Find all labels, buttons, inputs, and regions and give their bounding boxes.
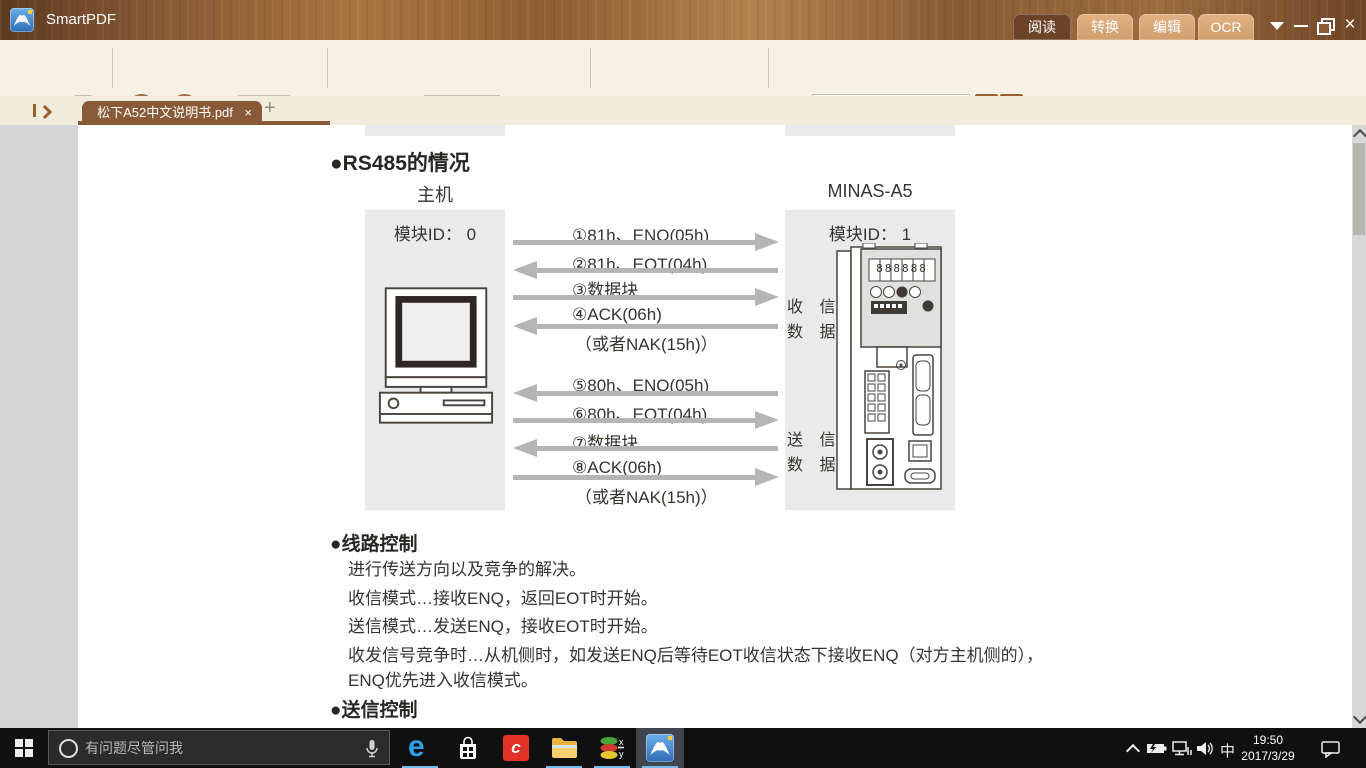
main-toolbar: ← → 页码: /512 150% ↺ ↻ bbox=[0, 40, 1366, 97]
taskbar-red-app-button[interactable]: c bbox=[492, 728, 540, 768]
taskbar-edge-button[interactable]: e bbox=[396, 728, 444, 768]
microphone-icon[interactable] bbox=[365, 739, 379, 759]
mode-tab-convert[interactable]: 转换 bbox=[1077, 14, 1133, 40]
taskbar: e c bbox=[0, 728, 1366, 768]
device-module-id: 模块ID： 1 bbox=[785, 220, 955, 245]
taskbar-store-button[interactable] bbox=[444, 728, 492, 768]
pdf-page: ●RS485的情况 主机 MINAS-A5 模块ID： 0 bbox=[78, 125, 1352, 728]
sidebar-toggle-icon[interactable] bbox=[33, 104, 53, 118]
diagram-box-remnant bbox=[785, 125, 955, 136]
line-control-line: 进行传送方向以及竞争的解决。 bbox=[348, 555, 586, 580]
arrow-right-head bbox=[755, 233, 779, 251]
document-tab-bar: 松下A52中文说明书.pdf × + bbox=[0, 96, 1366, 125]
toolbar-separator bbox=[768, 48, 769, 88]
battery-icon[interactable] bbox=[1146, 742, 1168, 755]
arrow-left-head bbox=[513, 439, 537, 457]
xy-data-app-icon: x y bbox=[599, 735, 626, 762]
arrow-left bbox=[537, 446, 778, 451]
diagram-box-remnant bbox=[365, 125, 505, 136]
close-button[interactable]: × bbox=[1340, 16, 1360, 34]
line-control-line: 送信模式…发送ENQ，接收EOT时开始。 bbox=[348, 612, 658, 637]
title-bar: SmartPDF 阅读 转换 编辑 OCR × bbox=[0, 0, 1366, 40]
host-column-title: 主机 bbox=[365, 181, 505, 207]
taskbar-xy-app-button[interactable]: x y bbox=[588, 728, 636, 768]
mode-tab-edit[interactable]: 编辑 bbox=[1139, 14, 1195, 40]
menu-dropdown-icon[interactable] bbox=[1268, 16, 1288, 34]
servo-display-digits: 888888 bbox=[869, 262, 935, 275]
cortana-search-input[interactable] bbox=[83, 735, 337, 761]
vertical-scrollbar[interactable] bbox=[1352, 125, 1366, 728]
scroll-down-icon[interactable] bbox=[1353, 710, 1366, 724]
file-explorer-icon bbox=[551, 737, 577, 759]
arrow-left-head bbox=[513, 384, 537, 402]
tray-expand-icon[interactable] bbox=[1126, 744, 1140, 758]
network-icon[interactable] bbox=[1172, 741, 1192, 757]
arrow-left-head bbox=[513, 261, 537, 279]
action-center-icon[interactable] bbox=[1320, 740, 1342, 758]
window-title: SmartPDF bbox=[46, 11, 116, 28]
taskbar-clock[interactable]: 19:50 2017/3/29 bbox=[1238, 732, 1298, 764]
arrow-right-head bbox=[755, 288, 779, 306]
scrollbar-thumb[interactable] bbox=[1353, 143, 1365, 235]
host-module-id: 模块ID： 0 bbox=[365, 220, 505, 245]
sequence-note-1: （或者NAK(15h)） bbox=[575, 330, 718, 355]
line-control-line: 收信模式…接收ENQ，返回EOT时开始。 bbox=[348, 584, 658, 609]
arrow-left bbox=[537, 268, 778, 273]
red-app-icon: c bbox=[503, 735, 529, 761]
smartpdf-window: SmartPDF 阅读 转换 编辑 OCR × bbox=[0, 0, 1366, 768]
send-control-heading: ●送信控制 bbox=[330, 695, 417, 722]
arrow-right-head bbox=[755, 411, 779, 429]
arrow-left-head bbox=[513, 317, 537, 335]
document-tab[interactable]: 松下A52中文说明书.pdf × bbox=[82, 101, 262, 125]
line-control-line: 收发信号竞争时…从机侧时，如发送ENQ后等待EOT收信状态下接收ENQ（对方主机… bbox=[348, 641, 1043, 666]
smartpdf-taskbar-icon bbox=[646, 734, 674, 762]
clock-date: 2017/3/29 bbox=[1238, 748, 1298, 764]
mode-tab-read[interactable]: 阅读 bbox=[1013, 14, 1071, 40]
edge-icon: e bbox=[408, 730, 425, 764]
restore-button[interactable] bbox=[1316, 16, 1336, 34]
close-tab-icon[interactable]: × bbox=[244, 101, 252, 125]
arrow-right bbox=[513, 240, 755, 245]
toolbar-separator bbox=[327, 48, 328, 88]
toolbar-separator bbox=[112, 48, 113, 88]
store-icon bbox=[456, 736, 480, 762]
sequence-note-2: （或者NAK(15h)） bbox=[575, 483, 718, 508]
section-heading: ●RS485的情况 bbox=[330, 147, 470, 177]
volume-icon[interactable] bbox=[1196, 741, 1214, 756]
computer-illustration bbox=[378, 285, 494, 430]
document-tab-title: 松下A52中文说明书.pdf bbox=[97, 105, 233, 120]
mode-tab-ocr[interactable]: OCR bbox=[1198, 14, 1254, 40]
sequence-label-4: ④ACK(06h) bbox=[572, 305, 662, 325]
document-viewport: ●RS485的情况 主机 MINAS-A5 模块ID： 0 bbox=[0, 125, 1366, 728]
svg-text:x: x bbox=[619, 737, 624, 747]
arrow-left bbox=[537, 324, 778, 329]
arrow-left bbox=[537, 391, 778, 396]
minimize-button[interactable] bbox=[1292, 16, 1312, 34]
cortana-icon bbox=[59, 739, 78, 758]
cortana-search-box[interactable] bbox=[48, 730, 390, 765]
scroll-up-icon[interactable] bbox=[1353, 129, 1366, 143]
line-control-heading: ●线路控制 bbox=[330, 529, 417, 556]
device-column-title: MINAS-A5 bbox=[785, 181, 955, 202]
toolbar-separator bbox=[590, 48, 591, 88]
new-tab-button[interactable]: + bbox=[264, 97, 276, 120]
arrow-right bbox=[513, 475, 755, 480]
start-button[interactable] bbox=[0, 728, 48, 768]
arrow-right-head bbox=[755, 468, 779, 486]
arrow-right bbox=[513, 418, 755, 423]
ime-indicator[interactable]: 中 bbox=[1220, 740, 1235, 761]
line-control-line: ENQ优先进入收信模式。 bbox=[348, 666, 538, 691]
taskbar-explorer-button[interactable] bbox=[540, 728, 588, 768]
servo-drive-illustration: 888888 bbox=[833, 243, 945, 498]
clock-time: 19:50 bbox=[1238, 732, 1298, 748]
taskbar-smartpdf-button[interactable] bbox=[636, 728, 684, 768]
arrow-right bbox=[513, 295, 755, 300]
smartpdf-logo-icon bbox=[10, 8, 34, 32]
svg-text:y: y bbox=[619, 749, 624, 759]
